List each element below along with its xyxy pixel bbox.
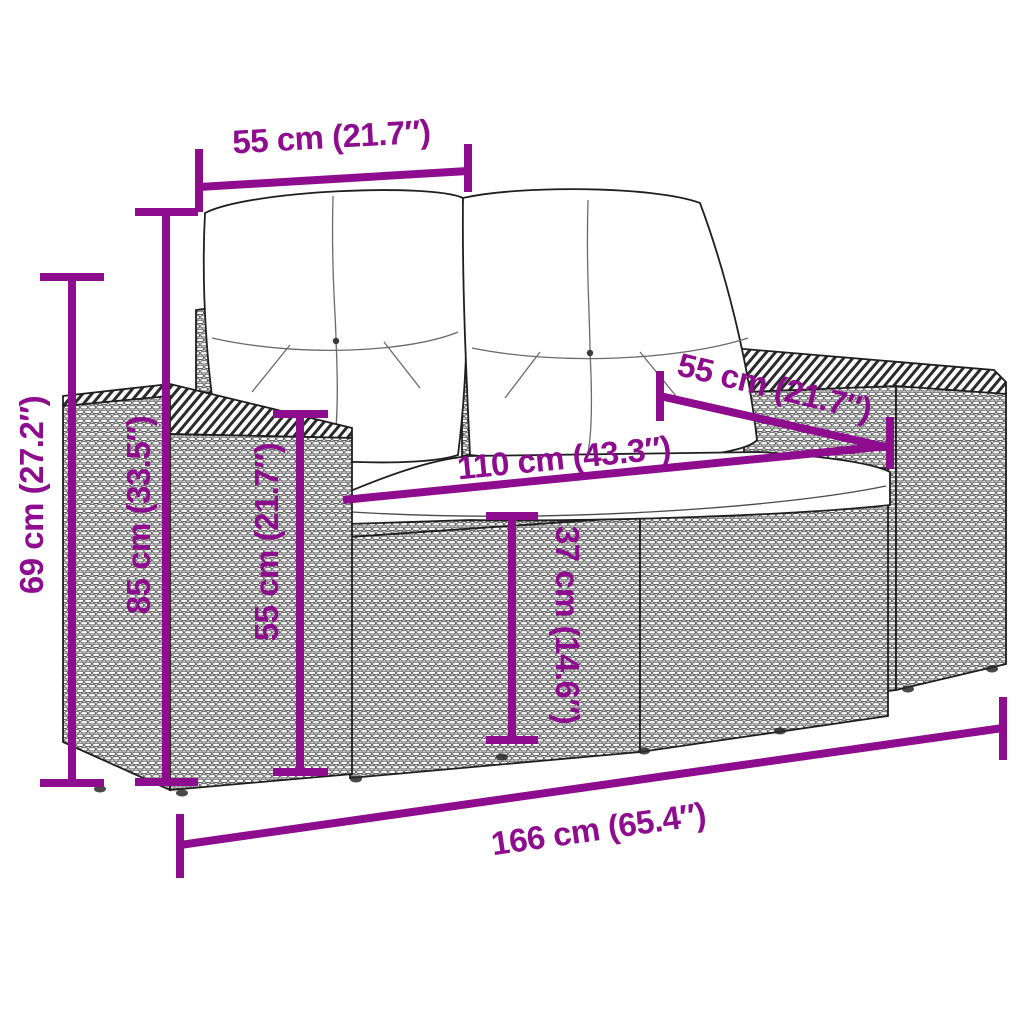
dim-top-horizontal-label: 55 cm (21.7″) — [231, 113, 431, 161]
dim-bottom-horizontal-label: 166 cm (65.4″) — [489, 795, 708, 862]
base-drawer-right — [640, 500, 888, 752]
dim-center-vertical-label: 37 cm (14.6″) — [549, 526, 586, 724]
dim-left-inner-vertical-label: 85 cm (33.5″) — [120, 416, 157, 614]
sofa-dimension-diagram: 55 cm (21.7″) 55 cm (21.7″) 110 cm (43.3… — [0, 0, 1024, 1024]
sofa-drawing — [63, 189, 1006, 796]
left-armrest — [63, 384, 352, 790]
back-cushion-right — [463, 189, 757, 461]
diagram-canvas: 55 cm (21.7″) 55 cm (21.7″) 110 cm (43.3… — [0, 0, 1024, 1024]
dim-left-outer-vertical-label: 69 cm (27.2″) — [13, 396, 50, 594]
right-armrest-side-face — [896, 386, 1006, 690]
dim-armrest-vertical-label: 55 cm (21.7″) — [248, 443, 285, 641]
